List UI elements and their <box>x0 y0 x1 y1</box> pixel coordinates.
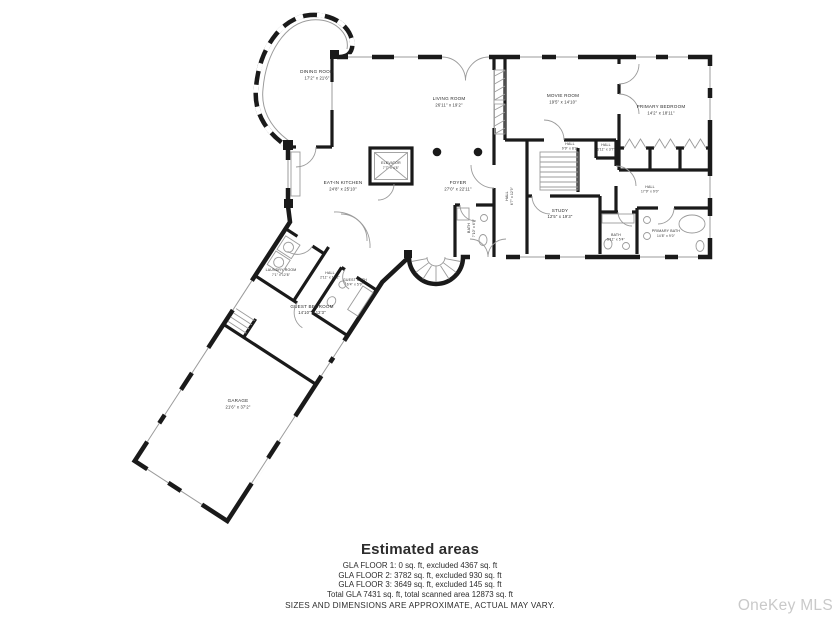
svg-text:6'11" x 3'7": 6'11" x 3'7" <box>597 148 615 152</box>
svg-text:7'10" x 6'9": 7'10" x 6'9" <box>472 219 476 237</box>
gla-floor-1: GLA FLOOR 1: 0 sq. ft, excluded 4367 sq.… <box>0 561 840 571</box>
svg-text:PRIMARY BEDROOM: PRIMARY BEDROOM <box>637 104 686 109</box>
floor-plan: DINING ROOM 17'2" x 21'6" LIVING ROOM 26… <box>0 0 840 545</box>
svg-text:9'9" x 8'2": 9'9" x 8'2" <box>562 147 578 151</box>
svg-text:FOYER: FOYER <box>450 180 467 185</box>
svg-text:DINING ROOM: DINING ROOM <box>300 69 334 74</box>
svg-text:HALL: HALL <box>645 185 655 189</box>
watermark: OneKey MLS <box>738 597 833 615</box>
svg-text:GUEST BEDROOM: GUEST BEDROOM <box>290 304 333 309</box>
gla-floor-2: GLA FLOOR 2: 3782 sq. ft, excluded 930 s… <box>0 571 840 581</box>
room-label-garage: GARAGE 21'6" x 37'2" <box>225 398 250 410</box>
svg-text:LIVING ROOM: LIVING ROOM <box>433 96 466 101</box>
svg-text:HALL: HALL <box>565 142 575 146</box>
gla-total: Total GLA 7431 sq. ft, total scanned are… <box>0 590 840 600</box>
svg-text:27'0" x 22'11": 27'0" x 22'11" <box>444 187 472 192</box>
column-icon <box>433 148 442 157</box>
svg-text:BATH: BATH <box>611 233 621 237</box>
svg-text:21'6" x 37'2": 21'6" x 37'2" <box>225 405 250 410</box>
svg-text:5'11" x 5'4": 5'11" x 5'4" <box>607 238 625 242</box>
svg-text:STUDY: STUDY <box>552 208 569 213</box>
room-label-elevator: ELEVATOR 7'7" x 4'8" <box>381 161 401 170</box>
svg-text:HALL: HALL <box>505 191 509 201</box>
svg-text:GARAGE: GARAGE <box>228 398 249 403</box>
svg-text:17'2" x 21'6": 17'2" x 21'6" <box>304 76 329 81</box>
svg-text:LAUNDRY ROOM: LAUNDRY ROOM <box>266 268 297 272</box>
svg-text:6'4" x 5'9": 6'4" x 5'9" <box>347 283 363 287</box>
svg-text:HALL: HALL <box>601 143 611 147</box>
disclaimer-text: SIZES AND DIMENSIONS ARE APPROXIMATE, AC… <box>0 601 840 610</box>
svg-text:GUEST BATH: GUEST BATH <box>343 278 367 282</box>
svg-text:ELEVATOR: ELEVATOR <box>381 161 401 165</box>
svg-text:MOVIE ROOM: MOVIE ROOM <box>547 93 579 98</box>
svg-text:17'9" x 9'0": 17'9" x 9'0" <box>641 190 659 194</box>
column-icon <box>474 148 483 157</box>
room-label-movie-room: MOVIE ROOM 19'5" x 14'10" <box>547 93 579 105</box>
floor-plan-svg: DINING ROOM 17'2" x 21'6" LIVING ROOM 26… <box>0 0 840 545</box>
svg-text:PRIMARY BATH: PRIMARY BATH <box>652 229 681 233</box>
svg-text:EAT-IN KITCHEN: EAT-IN KITCHEN <box>324 180 363 185</box>
svg-text:HALL: HALL <box>325 271 335 275</box>
gla-floor-3: GLA FLOOR 3: 3649 sq. ft, excluded 145 s… <box>0 580 840 590</box>
svg-text:2'11" x 10'2": 2'11" x 10'2" <box>320 276 340 280</box>
room-label-dining-room: DINING ROOM 17'2" x 21'6" <box>300 69 334 81</box>
room-label-living-room: LIVING ROOM 26'11" x 19'2" <box>433 96 466 108</box>
svg-text:14'2" x 18'11": 14'2" x 18'11" <box>647 111 675 116</box>
svg-text:19'5" x 14'10": 19'5" x 14'10" <box>549 100 577 105</box>
svg-text:24'8" x 25'10": 24'8" x 25'10" <box>329 187 357 192</box>
estimated-areas-title: Estimated areas <box>0 541 840 558</box>
svg-text:14'10" x 12'3": 14'10" x 12'3" <box>298 310 326 315</box>
svg-text:26'11" x 19'2": 26'11" x 19'2" <box>435 103 463 108</box>
room-label-eat-in-kitchen: EAT-IN KITCHEN 24'8" x 25'10" <box>324 180 363 192</box>
svg-text:6'7" x 12'9": 6'7" x 12'9" <box>510 187 514 205</box>
svg-text:7'7" x 4'8": 7'7" x 4'8" <box>383 166 399 170</box>
svg-text:12'5" x 19'3": 12'5" x 19'3" <box>547 214 572 219</box>
svg-text:14'8" x 9'0": 14'8" x 9'0" <box>657 234 675 238</box>
svg-text:BATH: BATH <box>467 223 471 233</box>
estimated-areas-block: Estimated areas GLA FLOOR 1: 0 sq. ft, e… <box>0 541 840 599</box>
svg-text:7'1" x 12'8": 7'1" x 12'8" <box>272 273 290 277</box>
